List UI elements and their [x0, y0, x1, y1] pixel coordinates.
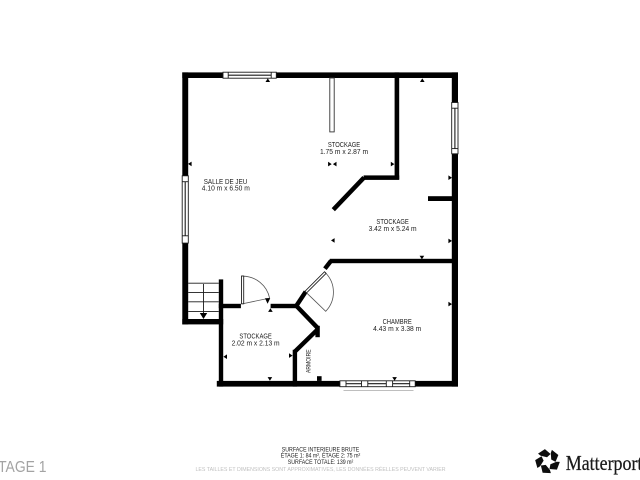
svg-text:4.10 m x 6.50 m: 4.10 m x 6.50 m: [202, 185, 250, 192]
svg-text:ARMOIRE: ARMOIRE: [306, 349, 313, 373]
svg-text:2.02 m x 2.13 m: 2.02 m x 2.13 m: [232, 340, 280, 347]
svg-text:ETAGE 1: ETAGE 1: [0, 458, 47, 476]
svg-text:LES TAILLES ET DIMENSIONS SONT: LES TAILLES ET DIMENSIONS SONT APPROXIMA…: [195, 466, 445, 473]
svg-text:Matterport: Matterport: [566, 453, 640, 475]
svg-text:1.75 m x 2.87 m: 1.75 m x 2.87 m: [320, 149, 368, 156]
svg-text:ÉTAGE 1: 84 m², ÉTAGE 2: 75 m²: ÉTAGE 1: 84 m², ÉTAGE 2: 75 m²: [281, 452, 360, 460]
svg-text:SURFACE TOTALE: 139 m²: SURFACE TOTALE: 139 m²: [288, 460, 354, 466]
svg-text:4.43 m x 3.38 m: 4.43 m x 3.38 m: [373, 326, 421, 333]
svg-text:3.42 m x 5.24 m: 3.42 m x 5.24 m: [369, 226, 417, 233]
